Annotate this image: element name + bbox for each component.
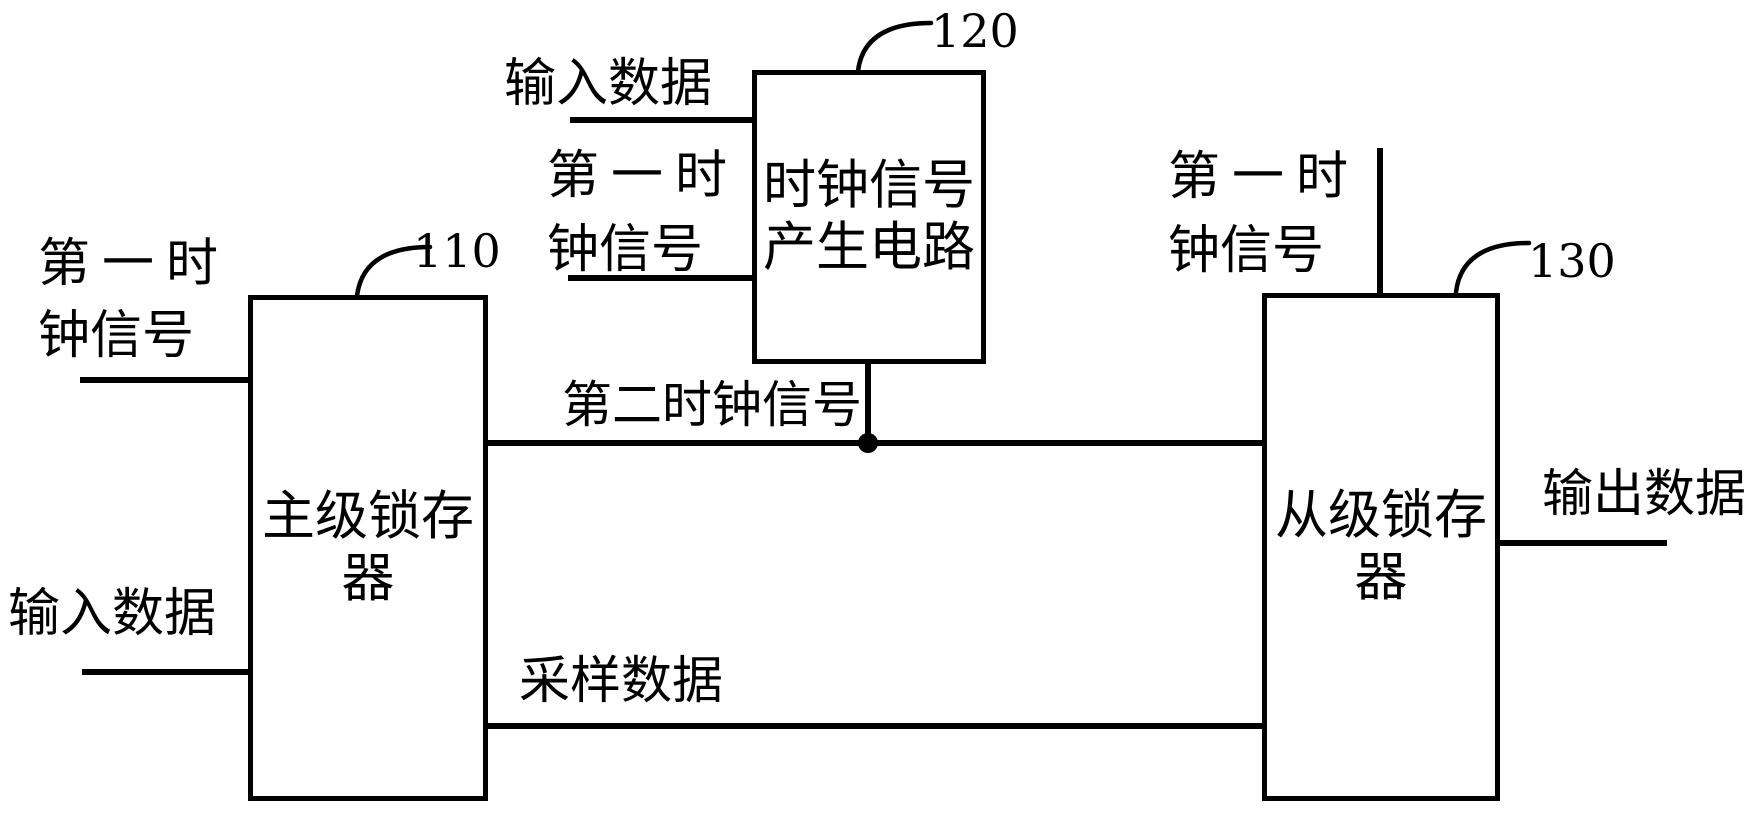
block-master-latch-label-line2: 器: [342, 548, 395, 610]
label-output-data: 输出数据: [1542, 469, 1746, 520]
block-master-latch-label-line1: 主级锁存: [262, 486, 474, 548]
block-slave-latch-label-line2: 器: [1355, 547, 1408, 609]
label-first-clock-left-line1: 第一时: [38, 238, 230, 290]
label-first-clock-top-line2: 钟信号: [547, 224, 703, 276]
block-clock-generator-label-line1: 时钟信号: [763, 155, 975, 217]
patent-figure: 主级锁存 器 时钟信号 产生电路 从级锁存 器 110 120 130 输入数据…: [0, 0, 1750, 819]
block-master-latch: 主级锁存 器: [248, 295, 488, 801]
ref-numeral-130: 130: [1528, 238, 1616, 284]
block-slave-latch-label-line1: 从级锁存: [1275, 485, 1487, 547]
leader-ref-120: [858, 23, 931, 71]
label-input-data-top: 输入数据: [504, 58, 712, 110]
label-sampled-data: 采样数据: [519, 656, 723, 707]
label-first-clock-left-line2: 钟信号: [38, 310, 194, 362]
label-second-clock: 第二时钟信号: [562, 380, 862, 430]
leader-ref-130: [1456, 243, 1529, 292]
junction-dot: [858, 433, 878, 453]
label-first-clock-right-line2: 钟信号: [1168, 225, 1324, 277]
block-slave-latch: 从级锁存 器: [1262, 293, 1500, 801]
block-clock-generator: 时钟信号 产生电路: [752, 70, 986, 364]
ref-numeral-110: 110: [413, 228, 501, 274]
label-first-clock-top-line1: 第一时: [547, 150, 739, 202]
ref-numeral-120: 120: [931, 8, 1019, 54]
label-input-data-left: 输入数据: [8, 588, 216, 640]
label-first-clock-right-line1: 第一时: [1168, 151, 1360, 203]
block-clock-generator-label-line2: 产生电路: [763, 217, 975, 279]
